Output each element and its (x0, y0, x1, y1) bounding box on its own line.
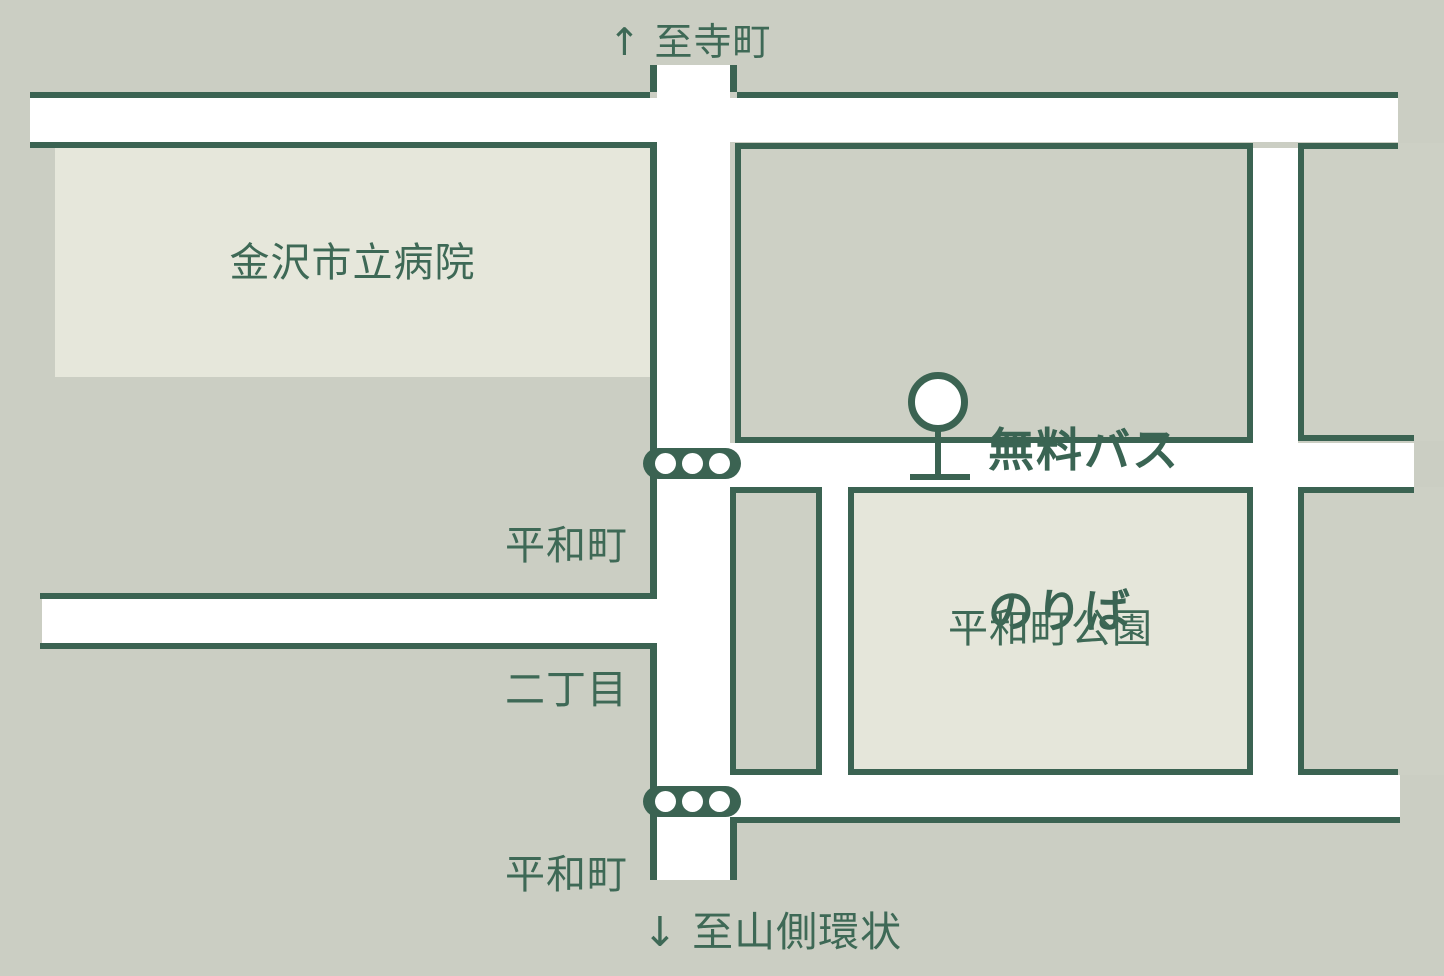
road-border (737, 92, 1398, 98)
road-border (737, 817, 1400, 823)
block-small (730, 487, 822, 775)
bus-stop-sign-pole (935, 428, 941, 480)
traffic-light-dot (709, 453, 730, 474)
road-border (650, 649, 657, 880)
traffic-light-icon (643, 786, 741, 817)
road-border (650, 148, 657, 593)
traffic-light-dot (709, 791, 730, 812)
road-border (730, 817, 737, 880)
intersection-label-heiwa2-line1: 平和町 (505, 522, 628, 570)
road-border (30, 92, 650, 98)
road-border (1298, 769, 1398, 775)
traffic-light-dot (682, 453, 703, 474)
road-border (650, 65, 657, 92)
path-between-blocks (822, 443, 848, 817)
block-right-bottom (1298, 487, 1444, 775)
bus-stop-label-line1: 無料バス (988, 424, 1180, 478)
bus-stop-sign-base (910, 474, 970, 480)
destination-label-top: ↑ 至寺町 (540, 20, 840, 65)
bus-stop-label: 無料バス のりば (988, 316, 1180, 747)
road-border (1298, 487, 1414, 493)
road-border (1298, 435, 1414, 441)
intersection-label-heiwa2-line2: 二丁目 (505, 666, 628, 714)
destination-label-bottom: ↓ 至山側環状 (600, 908, 945, 956)
road-right-vertical (1253, 148, 1298, 817)
traffic-light-dot (655, 791, 676, 812)
road-border (1298, 143, 1304, 441)
traffic-light-dot (655, 453, 676, 474)
park-label: 平和町公園 (848, 606, 1253, 653)
bus-stop-sign-head (908, 372, 968, 432)
hospital-label: 金沢市立病院 (55, 240, 650, 287)
road-border (730, 65, 737, 92)
intersection-label-heiwa2: 平和町 二丁目 (505, 426, 628, 810)
intersection-label-heiwa3-line1: 平和町 (505, 851, 628, 899)
traffic-light-dot (682, 791, 703, 812)
road-border (1298, 487, 1304, 775)
block-right-top (1298, 143, 1444, 441)
traffic-light-icon (643, 448, 741, 479)
map-canvas: ↑ 至寺町 金沢市立病院 無料バス のりば 平和町 二丁目 平和町公園 平和町 … (0, 0, 1444, 976)
road-border (1298, 143, 1398, 149)
